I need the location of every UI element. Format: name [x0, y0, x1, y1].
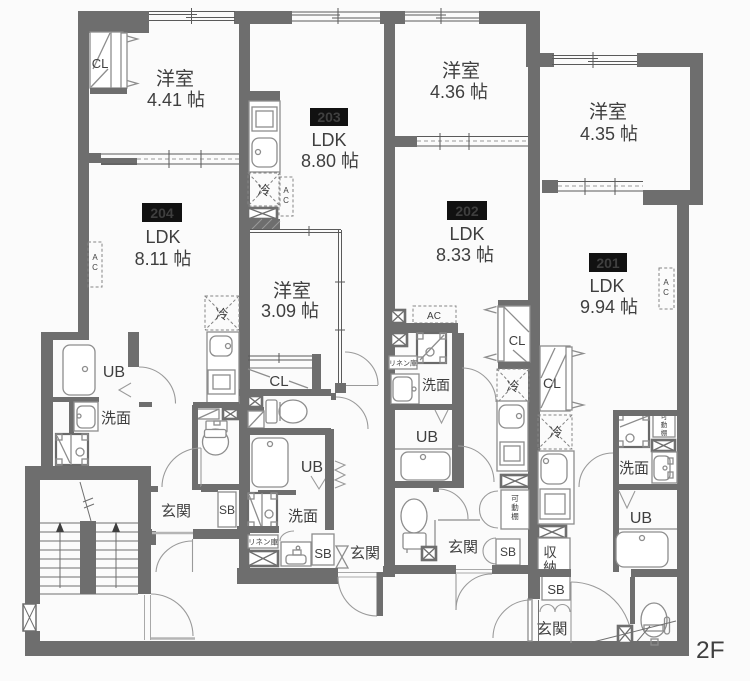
svg-text:リネン庫: リネン庫 [389, 359, 417, 368]
svg-text:9.94 帖: 9.94 帖 [580, 297, 638, 317]
svg-text:洗面: 洗面 [422, 377, 450, 393]
svg-text:C: C [283, 196, 289, 205]
svg-text:CL: CL [509, 333, 526, 348]
svg-text:洋室: 洋室 [589, 101, 627, 123]
svg-text:収: 収 [543, 545, 557, 560]
svg-text:C: C [92, 263, 98, 272]
svg-text:冷: 冷 [549, 425, 562, 440]
svg-text:CL: CL [269, 373, 288, 390]
svg-text:UB: UB [416, 429, 438, 446]
svg-text:玄関: 玄関 [350, 545, 380, 562]
svg-text:2F: 2F [696, 637, 725, 664]
svg-text:SB: SB [219, 503, 235, 517]
svg-text:8.80 帖: 8.80 帖 [301, 151, 359, 171]
svg-text:8.11 帖: 8.11 帖 [135, 249, 192, 269]
svg-text:玄関: 玄関 [536, 620, 567, 638]
svg-text:冷: 冷 [215, 307, 228, 322]
svg-text:動: 動 [511, 503, 519, 512]
svg-text:洋室: 洋室 [273, 280, 311, 302]
svg-text:LDK: LDK [311, 130, 346, 150]
svg-text:3.09 帖: 3.09 帖 [261, 301, 319, 321]
svg-text:洗面: 洗面 [619, 460, 649, 477]
svg-text:203: 203 [317, 109, 341, 125]
svg-text:リネン庫: リネン庫 [248, 537, 278, 547]
svg-text:棚: 棚 [511, 511, 519, 521]
svg-text:202: 202 [455, 203, 479, 219]
svg-text:冷: 冷 [257, 183, 270, 198]
svg-text:LDK: LDK [145, 227, 180, 247]
svg-text:UB: UB [103, 364, 125, 381]
svg-text:洗面: 洗面 [288, 508, 318, 525]
svg-text:LDK: LDK [449, 224, 484, 244]
svg-text:A: A [663, 278, 669, 287]
svg-text:洗面: 洗面 [101, 410, 131, 427]
svg-text:SB: SB [547, 582, 564, 597]
svg-text:8.33 帖: 8.33 帖 [436, 245, 494, 265]
svg-text:LDK: LDK [589, 276, 624, 296]
svg-text:4.35 帖: 4.35 帖 [580, 124, 638, 144]
svg-text:UB: UB [630, 510, 652, 527]
svg-text:可: 可 [511, 494, 519, 503]
svg-text:玄関: 玄関 [161, 503, 191, 520]
svg-text:4.36 帖: 4.36 帖 [430, 82, 488, 102]
svg-text:CL: CL [92, 56, 109, 71]
svg-text:玄関: 玄関 [448, 539, 478, 556]
svg-text:洋室: 洋室 [442, 60, 480, 82]
svg-text:UB: UB [301, 459, 323, 476]
svg-text:棚: 棚 [661, 428, 668, 437]
svg-text:動: 動 [661, 420, 668, 429]
svg-text:SB: SB [314, 546, 331, 561]
svg-text:A: A [283, 186, 289, 195]
svg-text:201: 201 [596, 255, 620, 271]
svg-text:SB: SB [500, 545, 516, 559]
svg-text:A: A [92, 253, 98, 262]
svg-text:4.41 帖: 4.41 帖 [147, 90, 205, 110]
svg-text:CL: CL [543, 375, 561, 391]
svg-text:C: C [663, 288, 669, 297]
svg-text:204: 204 [150, 205, 174, 221]
svg-text:冷: 冷 [506, 379, 519, 394]
svg-text:洋室: 洋室 [156, 68, 194, 90]
svg-text:AC: AC [427, 311, 441, 322]
